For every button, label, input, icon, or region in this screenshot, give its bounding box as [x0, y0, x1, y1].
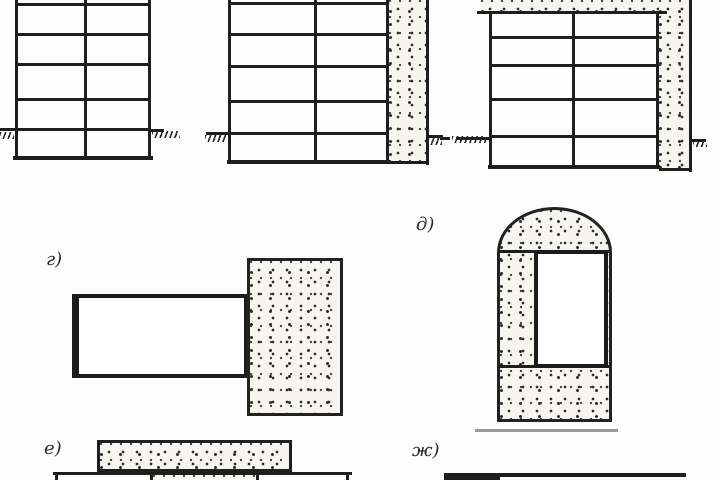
plan-diagram-g: г) — [0, 0, 720, 480]
column-line — [148, 0, 151, 160]
wall-edge-line — [689, 0, 692, 172]
ground-hatch-right — [693, 141, 707, 147]
ground-dash-left — [440, 137, 450, 140]
floor-line — [15, 128, 151, 131]
column-line — [656, 11, 659, 168]
belt-bottom-line — [477, 11, 667, 14]
ground-hatch-right — [428, 138, 442, 145]
arch-spring-line — [499, 250, 610, 253]
core-bottom-line — [499, 365, 610, 368]
inner-panel — [534, 250, 608, 368]
floor-line — [15, 63, 151, 66]
column-line — [150, 475, 153, 480]
frame-diagram-2 — [0, 0, 720, 480]
base-line — [227, 160, 390, 164]
plan-diagram-d: д) — [0, 0, 720, 480]
wall-base-line — [389, 161, 429, 164]
label-d: д) — [416, 215, 434, 235]
floor-line — [15, 3, 151, 6]
tower-outline — [497, 207, 612, 422]
core-strip — [153, 475, 256, 480]
floor-line — [228, 100, 389, 103]
label-zh: ж) — [412, 441, 439, 461]
column-line — [346, 475, 349, 480]
floor-line — [15, 98, 151, 101]
column-line — [84, 0, 87, 158]
shear-wall — [389, 0, 427, 164]
floor-line — [489, 135, 659, 138]
column-line — [386, 0, 389, 163]
shear-wall — [659, 0, 692, 170]
ground-hatch-right — [152, 131, 180, 138]
ground-hatch-left — [452, 136, 486, 143]
ground-line-right — [692, 139, 706, 142]
floor-line — [228, 33, 389, 36]
ground-line-left — [206, 132, 229, 135]
floor-line — [489, 64, 659, 67]
wall-edge-line — [426, 0, 429, 165]
ground-hatch-left — [0, 132, 14, 139]
base-line — [13, 156, 153, 160]
frame-diagram-3 — [0, 0, 720, 480]
floor-line — [228, 2, 389, 5]
ground-line-right — [150, 129, 164, 132]
column-line — [489, 11, 492, 168]
base-line — [488, 165, 660, 169]
roof-line — [53, 472, 352, 475]
floor-line — [15, 33, 151, 36]
column-line — [314, 0, 317, 163]
plan-outline — [72, 294, 248, 378]
frame-diagram-1 — [0, 0, 720, 480]
label-g: г) — [46, 250, 62, 270]
column-line — [572, 11, 575, 168]
elevation-diagram-e: е) — [0, 0, 720, 480]
wall-base-line — [659, 168, 692, 171]
top-stiff-belt — [97, 440, 292, 472]
floor-line — [489, 36, 659, 39]
ground-line-left — [0, 128, 16, 131]
floor-line — [489, 98, 659, 101]
roof-line — [444, 473, 686, 477]
ground-line-right — [428, 135, 443, 138]
ground-hatch-left — [205, 135, 227, 142]
elevation-diagram-zh: ж) — [0, 0, 720, 480]
core-block — [247, 258, 343, 416]
ground-line-left — [456, 137, 489, 140]
shadow-line — [475, 429, 618, 432]
column-line — [15, 0, 18, 158]
top-stiff-belt — [481, 0, 692, 13]
floor-line — [228, 132, 389, 135]
column-line — [228, 0, 231, 163]
figure-canvas: г) д) е) ж) — [0, 0, 720, 480]
floor-line — [228, 65, 389, 68]
column-line — [55, 475, 58, 480]
label-e: е) — [44, 439, 62, 459]
column-line — [256, 475, 259, 480]
